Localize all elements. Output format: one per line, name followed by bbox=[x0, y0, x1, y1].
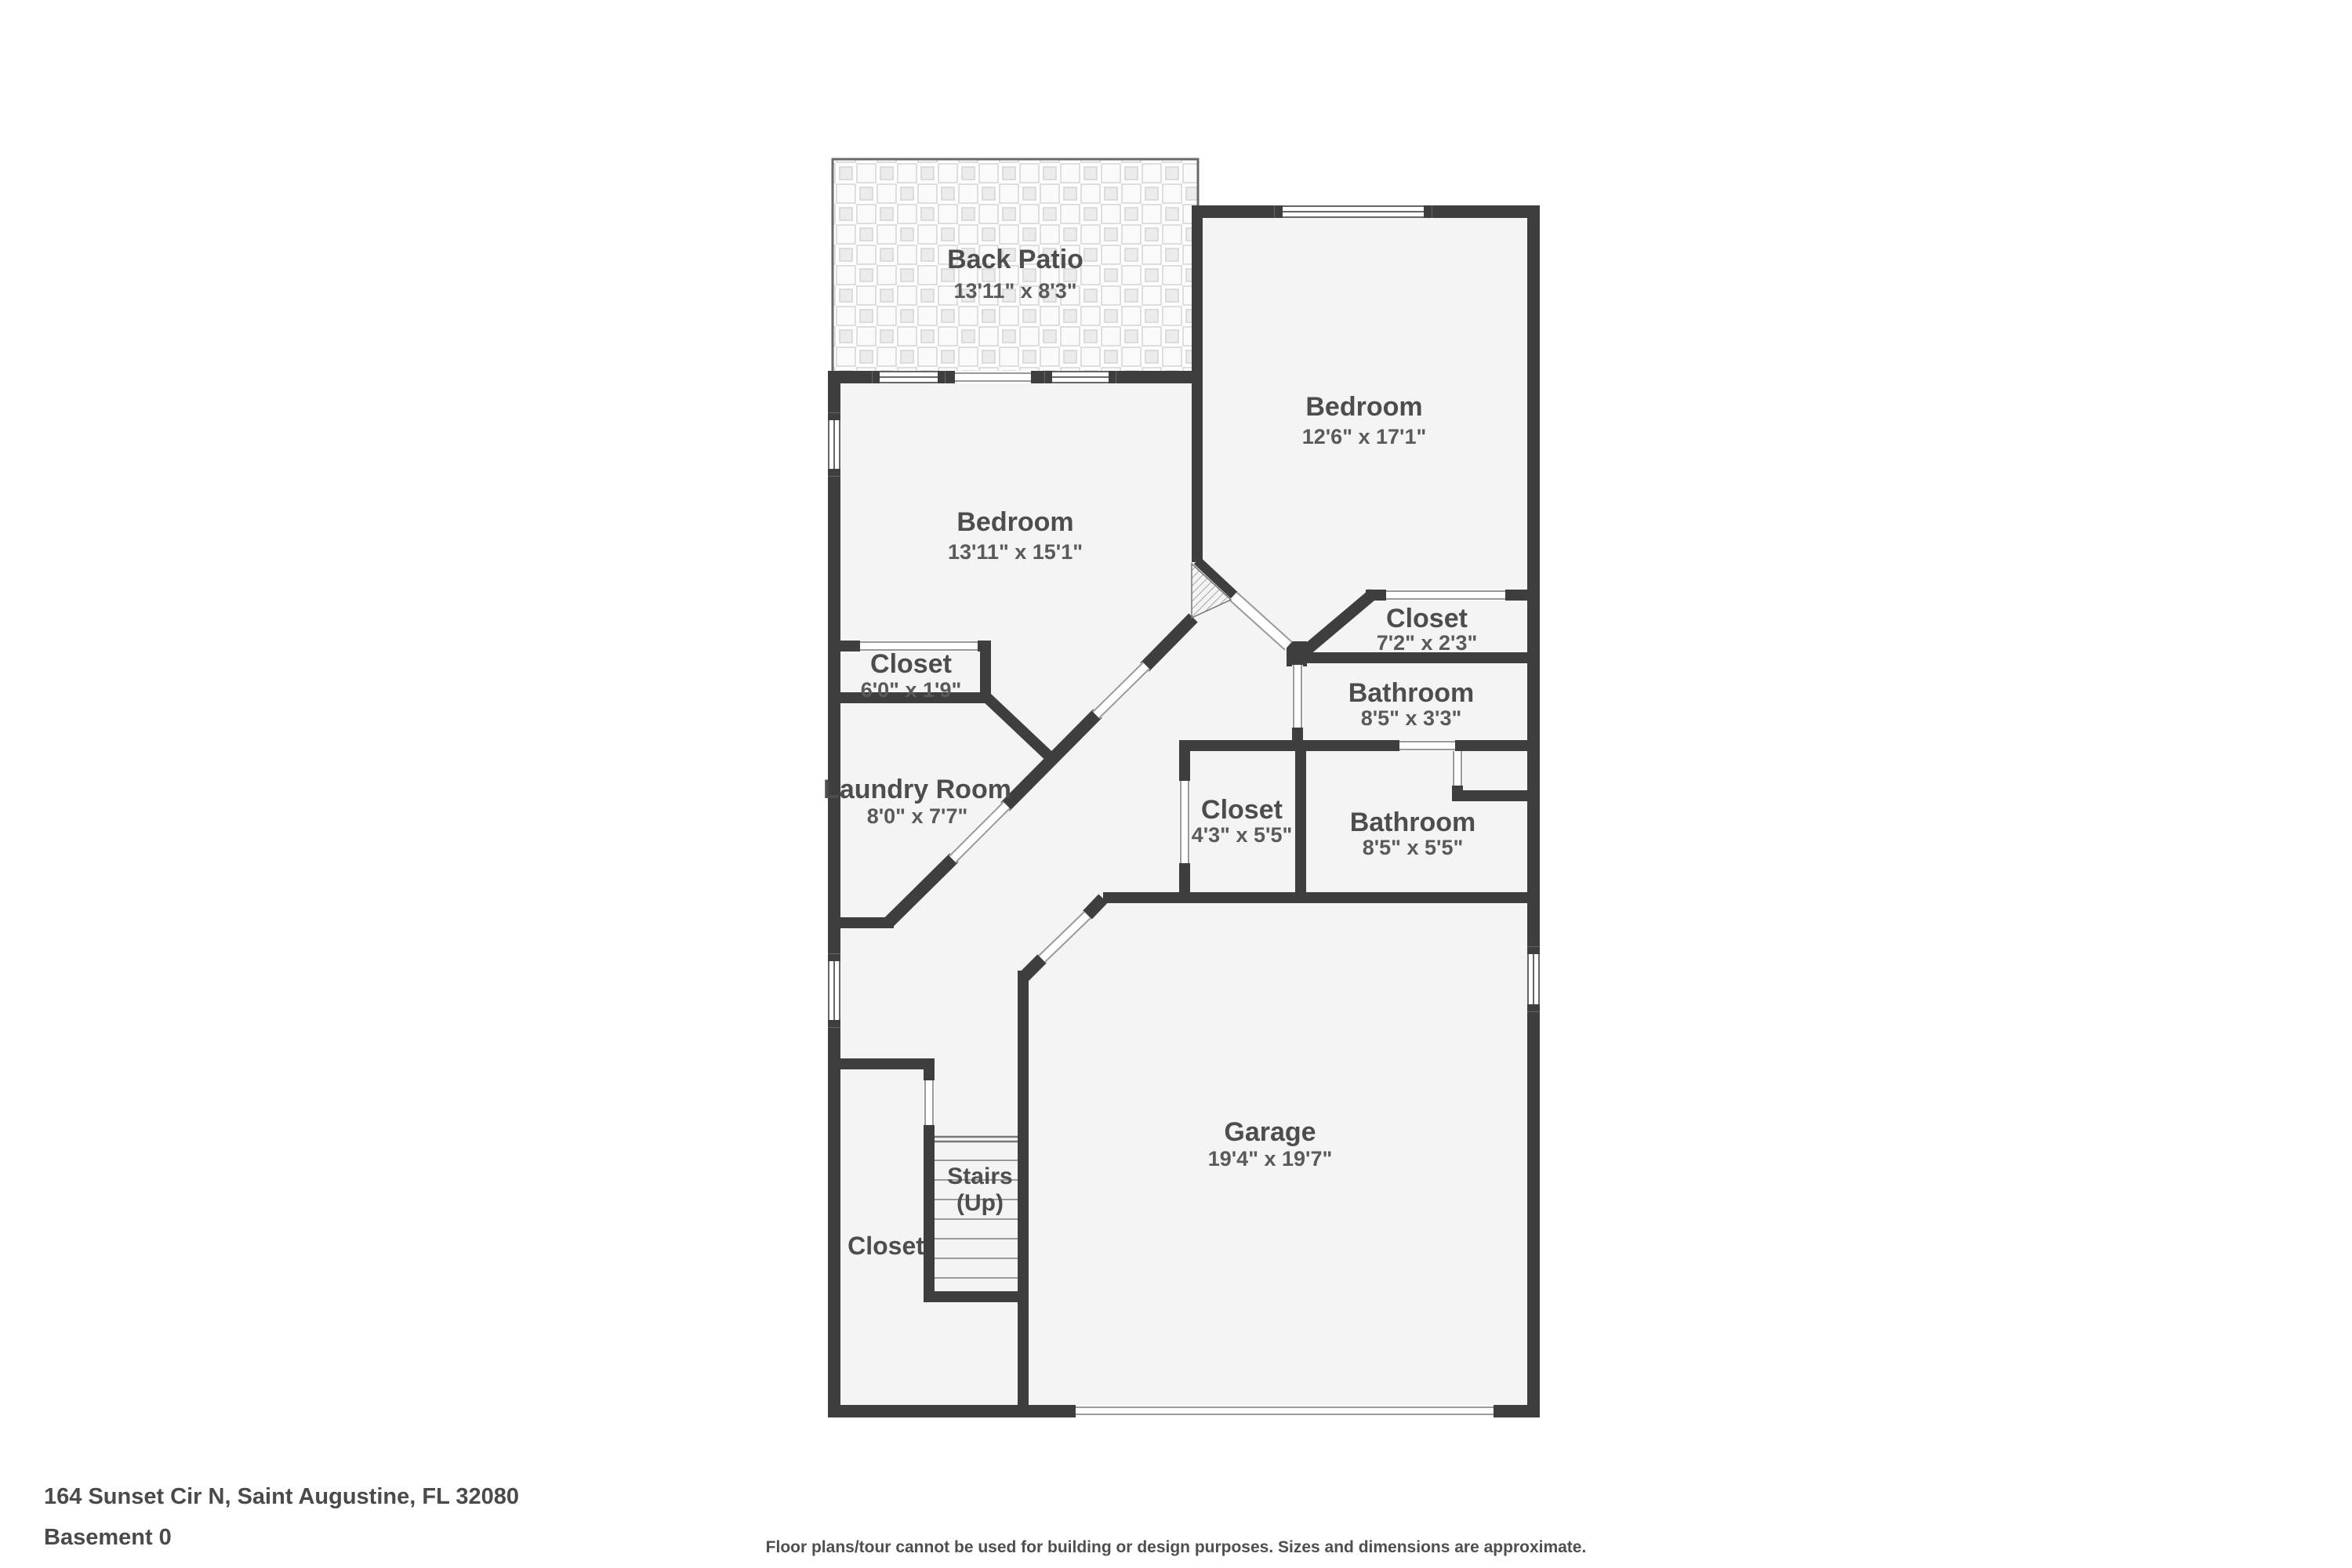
room-label: Bedroom bbox=[956, 507, 1073, 537]
room-stairs: Stairs (Up) bbox=[947, 1163, 1012, 1216]
room-dims: 6'0" x 1'9" bbox=[861, 678, 962, 702]
room-label: Closet bbox=[1386, 604, 1468, 633]
room-dims: 7'2" x 2'3" bbox=[1377, 631, 1478, 655]
room-back-patio: Back Patio 13'11" x 8'3" bbox=[833, 159, 1198, 372]
room-dims: 12'6" x 17'1" bbox=[1302, 425, 1427, 448]
room-closet-hall: Closet 4'3" x 5'5" bbox=[1192, 795, 1293, 847]
floor-label-text: Basement 0 bbox=[44, 1525, 172, 1550]
window-patio-left bbox=[873, 371, 945, 383]
room-dims: 13'11" x 15'1" bbox=[948, 540, 1083, 564]
closet-lower-door bbox=[924, 1080, 935, 1125]
room-dims: 4'3" x 5'5" bbox=[1192, 823, 1293, 847]
footer: 164 Sunset Cir N, Saint Augustine, FL 32… bbox=[44, 1484, 1586, 1556]
window-hall-left-wall bbox=[828, 954, 840, 1027]
room-label: Bedroom bbox=[1305, 392, 1422, 422]
stairs-direction: (Up) bbox=[956, 1190, 1004, 1216]
room-label: Bathroom bbox=[1350, 808, 1476, 837]
room-label: Stairs bbox=[947, 1163, 1012, 1189]
address-text: 164 Sunset Cir N, Saint Augustine, FL 32… bbox=[44, 1484, 519, 1509]
room-dims: 8'5" x 5'5" bbox=[1363, 836, 1464, 859]
room-closet-lower: Closet bbox=[848, 1232, 924, 1260]
room-label: Garage bbox=[1224, 1117, 1316, 1147]
room-label: Closet bbox=[870, 649, 952, 679]
garage-door-opening bbox=[1076, 1405, 1494, 1417]
room-dims: 13'11" x 8'3" bbox=[953, 279, 1076, 303]
room-dims: 8'5" x 3'3" bbox=[1361, 706, 1462, 730]
disclaimer-text: Floor plans/tour cannot be used for buil… bbox=[766, 1538, 1587, 1556]
bathroom-small-door bbox=[1292, 665, 1303, 728]
room-label: Back Patio bbox=[947, 245, 1083, 274]
room-closet-bedroom-left: Closet 6'0" x 1'9" bbox=[861, 649, 962, 702]
window-garage-right-wall bbox=[1527, 947, 1540, 1011]
room-label: Closet bbox=[848, 1232, 924, 1260]
room-dims: 19'4" x 19'7" bbox=[1208, 1147, 1333, 1171]
patio-slider-opening bbox=[955, 371, 1031, 383]
floor-plan-drawing: Back Patio 13'11" x 8'3" bbox=[0, 0, 2352, 1568]
room-bathroom-large: Bathroom 8'5" x 5'5" bbox=[1350, 808, 1476, 859]
window-bedroom-right-top bbox=[1275, 205, 1432, 218]
room-closet-bedroom-right: Closet 7'2" x 2'3" bbox=[1377, 604, 1478, 655]
room-bathroom-small: Bathroom 8'5" x 3'3" bbox=[1348, 678, 1475, 730]
room-dims: 8'0" x 7'7" bbox=[867, 804, 968, 828]
window-patio-right bbox=[1045, 371, 1116, 383]
floor-plan-page: Back Patio 13'11" x 8'3" bbox=[0, 0, 2352, 1568]
linen-niche-door bbox=[1452, 751, 1463, 786]
room-label: Laundry Room bbox=[823, 775, 1011, 804]
window-bedroom-left-wall bbox=[828, 413, 840, 476]
room-label: Bathroom bbox=[1348, 678, 1475, 708]
closet-bedroom-right-opening bbox=[1386, 590, 1505, 601]
room-bedroom-right: Bedroom 12'6" x 17'1" bbox=[1302, 392, 1427, 448]
bathrooms-connecting-door bbox=[1399, 740, 1455, 751]
room-bedroom-left: Bedroom 13'11" x 15'1" bbox=[948, 507, 1083, 564]
closet-hall-door bbox=[1179, 781, 1190, 863]
room-label: Closet bbox=[1201, 795, 1283, 825]
room-garage: Garage 19'4" x 19'7" bbox=[1208, 1117, 1333, 1171]
